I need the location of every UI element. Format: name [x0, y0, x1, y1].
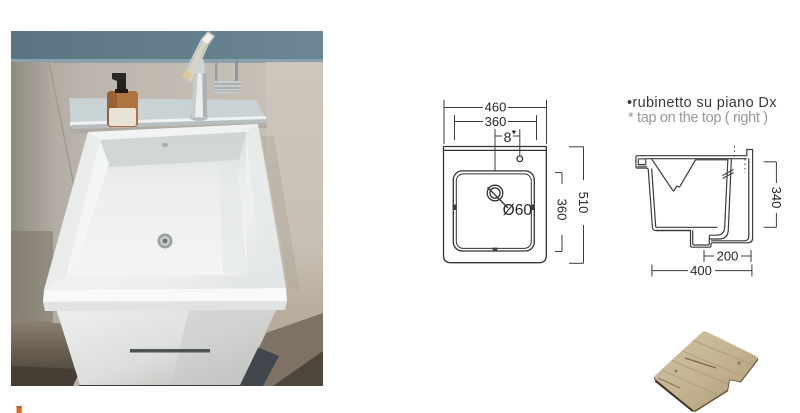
svg-text:200: 200	[717, 249, 739, 264]
svg-text:Ø60: Ø60	[503, 202, 533, 219]
svg-text:8: 8	[504, 129, 512, 145]
svg-text:400: 400	[690, 263, 712, 278]
svg-text:460: 460	[485, 100, 507, 115]
svg-text:340: 340	[769, 187, 784, 209]
svg-text:* tap on the top ( right ): * tap on the top ( right )	[628, 110, 768, 126]
svg-text:•rubinetto su piano Dx: •rubinetto su piano Dx	[627, 95, 777, 111]
svg-text:360: 360	[485, 114, 507, 129]
svg-text:360: 360	[555, 199, 570, 221]
svg-text:510: 510	[576, 192, 591, 214]
